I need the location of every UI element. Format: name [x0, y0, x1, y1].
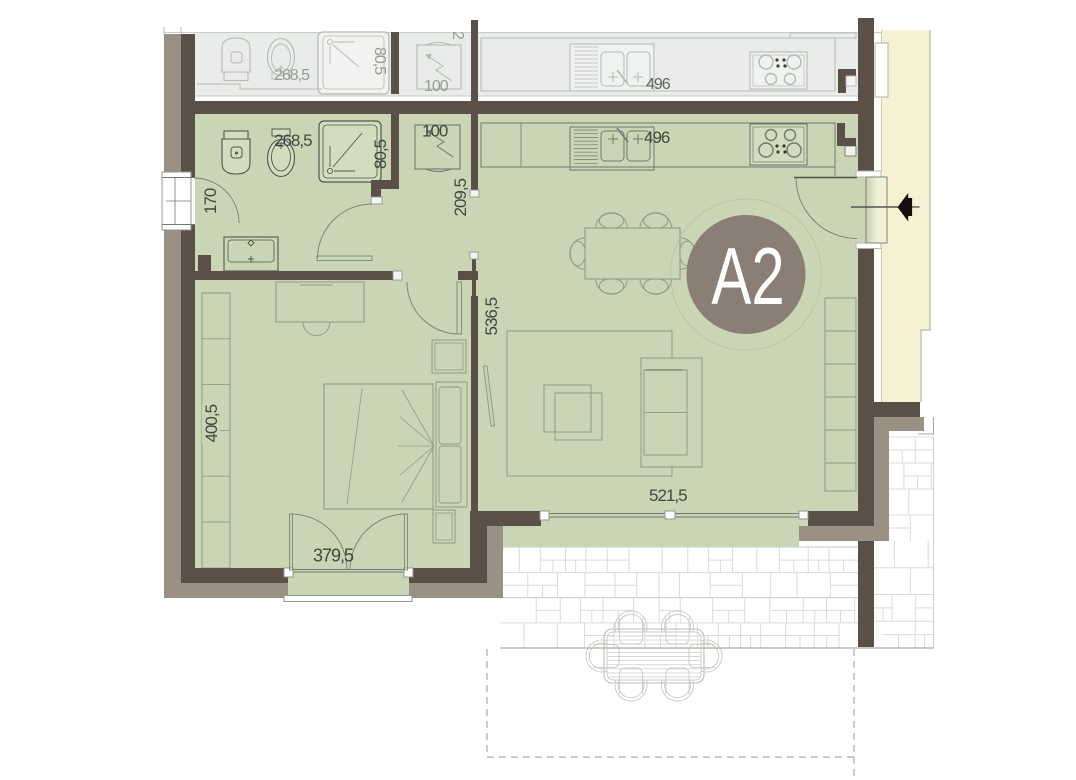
svg-text:A2: A2	[711, 231, 784, 322]
svg-text:100: 100	[424, 78, 449, 95]
svg-text:268,5: 268,5	[274, 67, 310, 84]
svg-text:536,5: 536,5	[482, 297, 501, 335]
svg-text:80,5: 80,5	[371, 47, 388, 75]
svg-text:170: 170	[201, 188, 220, 214]
svg-text:400,5: 400,5	[202, 404, 221, 442]
svg-text:2: 2	[449, 31, 466, 40]
svg-text:496: 496	[646, 76, 671, 93]
svg-text:80,5: 80,5	[371, 139, 390, 169]
svg-text:379,5: 379,5	[313, 546, 354, 566]
svg-text:496: 496	[644, 128, 670, 147]
svg-text:100: 100	[422, 122, 448, 141]
svg-text:521,5: 521,5	[649, 486, 687, 505]
svg-text:209,5: 209,5	[451, 178, 470, 216]
svg-text:268,5: 268,5	[274, 131, 312, 150]
